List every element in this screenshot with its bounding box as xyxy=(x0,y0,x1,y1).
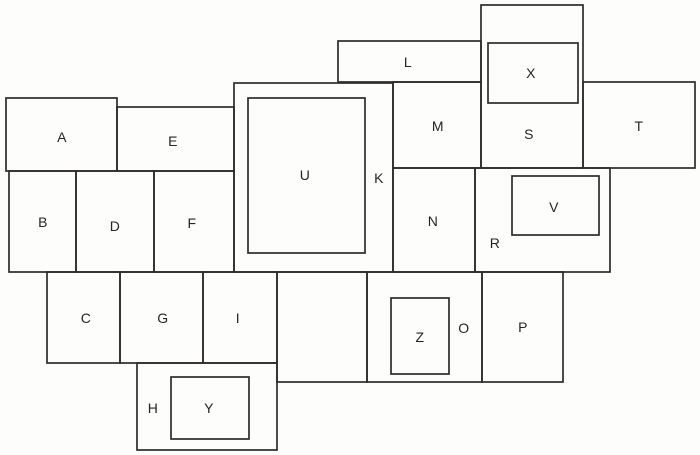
region-r-label: R xyxy=(490,235,501,251)
region-n-label: N xyxy=(428,213,439,229)
region-o-label: O xyxy=(458,320,469,336)
region-t-label: T xyxy=(634,118,643,134)
region-s-box xyxy=(481,5,583,168)
region-a-label: A xyxy=(57,129,67,145)
region-f-label: F xyxy=(187,215,196,231)
region-l-label: L xyxy=(404,54,412,70)
region-v-label: V xyxy=(549,199,559,215)
region-d-label: D xyxy=(110,218,121,234)
region-b-label: B xyxy=(38,214,48,230)
region-u-label: U xyxy=(300,167,311,183)
region-s-label: S xyxy=(524,126,534,142)
region-i-label: I xyxy=(236,310,240,326)
rectangles-diagram: AEBDFCGIHYKULSXMTNRVOZP xyxy=(0,0,700,455)
region-y-label: Y xyxy=(204,400,214,416)
region-k-label: K xyxy=(374,170,384,186)
region-x-label: X xyxy=(526,65,536,81)
region-m-label: M xyxy=(432,118,444,134)
region-p-label: P xyxy=(518,319,528,335)
region-e-label: E xyxy=(168,133,178,149)
region-r-box xyxy=(475,168,610,272)
region-k-box xyxy=(234,83,393,272)
region-z-label: Z xyxy=(415,329,424,345)
region-h-label: H xyxy=(148,400,159,416)
region-c-label: C xyxy=(81,310,92,326)
region-g-label: G xyxy=(157,310,168,326)
puzzle-figure: AEBDFCGIHYKULSXMTNRVOZP xyxy=(0,0,700,455)
region-unlabeled-box xyxy=(277,272,367,382)
